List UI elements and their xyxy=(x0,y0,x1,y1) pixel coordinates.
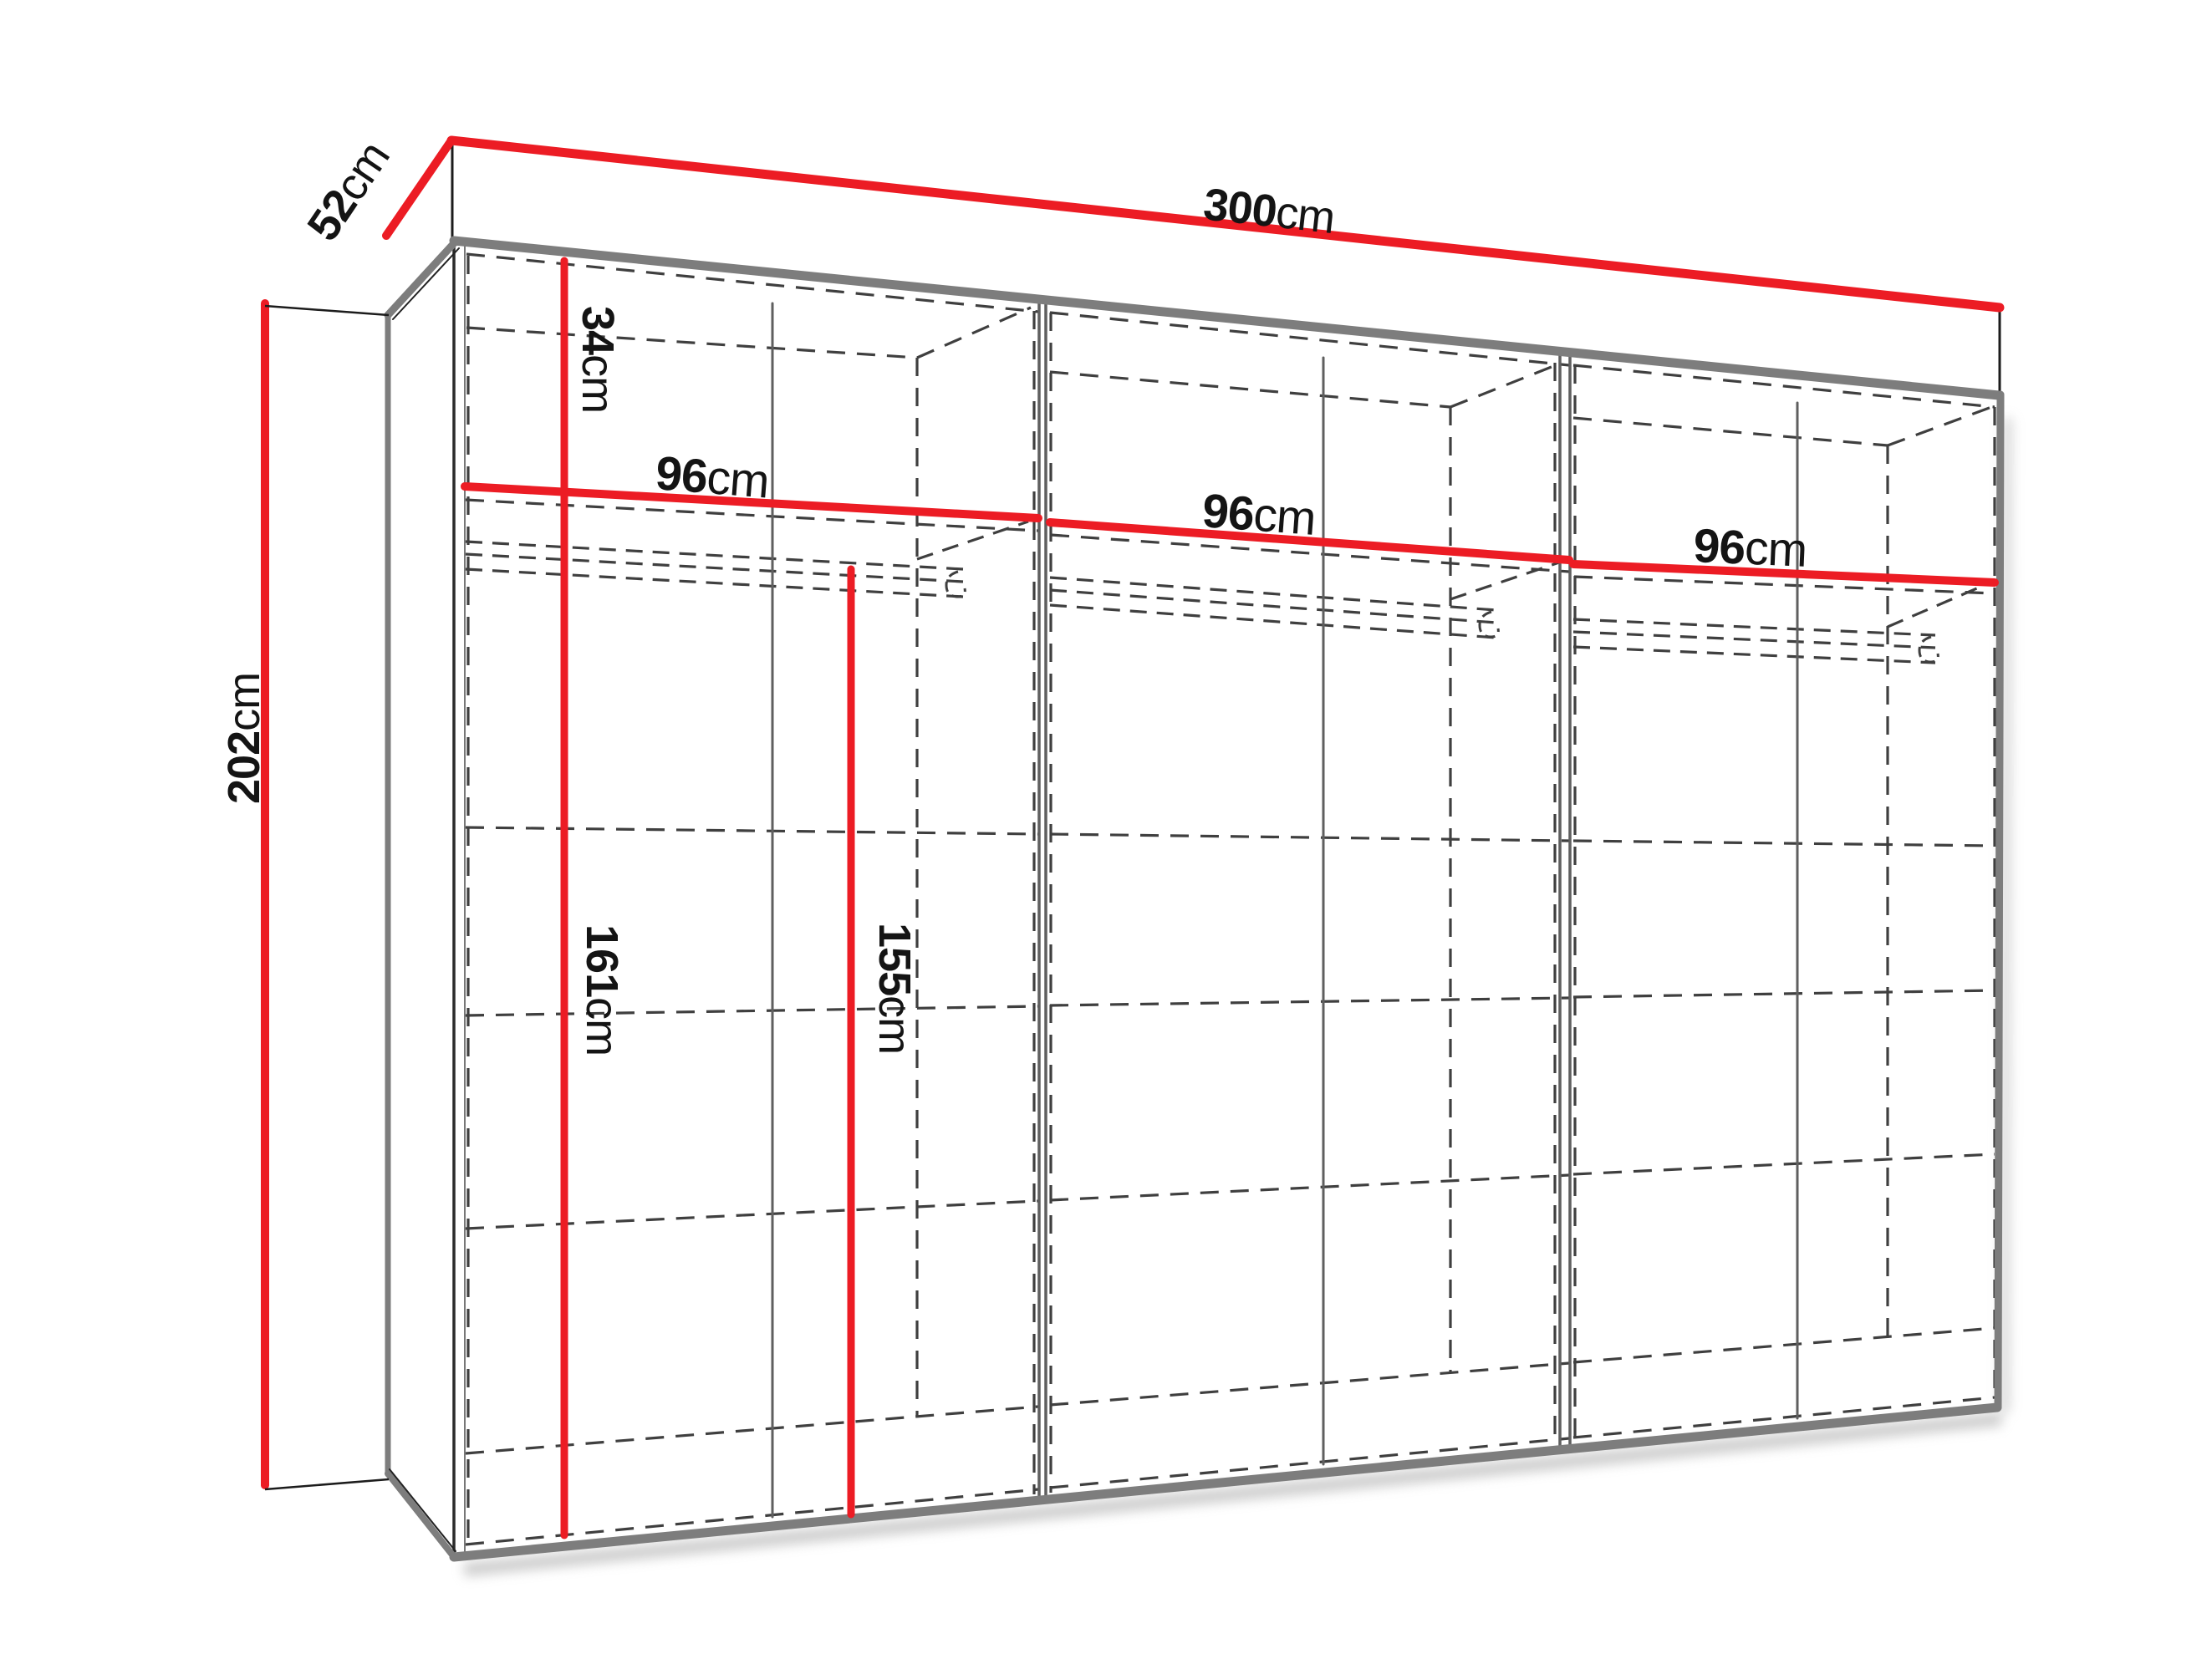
height-ext-top xyxy=(265,306,389,315)
hanging-rod-section3 xyxy=(1573,585,1985,663)
left-bottom-diagonal-edge xyxy=(388,1473,455,1558)
dim-line-depth-52 xyxy=(386,140,451,236)
shelfback-diag-s1 xyxy=(917,308,1031,358)
s2-level2-dashed xyxy=(1050,998,1569,1005)
interior-dashed-lines xyxy=(466,254,1995,1546)
diagram-canvas: 300cm 52cm 202cm 34cm 96cm 96cm 96cm 161… xyxy=(0,0,2212,1659)
dimension-label-hanging-height: 155cm xyxy=(869,923,920,1054)
s1-level2-dashed xyxy=(466,1006,1038,1015)
hanger-hook-icon xyxy=(1919,637,1938,662)
hanging-rod-section1 xyxy=(466,522,1028,597)
shelfback-dashed-s1 xyxy=(466,328,917,358)
s1-level4-dashed xyxy=(466,1407,1038,1453)
dimension-label-section2-width: 96cm xyxy=(1200,484,1318,546)
dimension-lines xyxy=(265,140,2000,1535)
wardrobe-shadow xyxy=(464,418,2007,1570)
left-top-diagonal-inner xyxy=(393,248,459,319)
s3-level1-dashed xyxy=(1573,841,1995,846)
dimension-label-lower-height: 161cm xyxy=(577,924,627,1056)
ceiling-dashed-s1 xyxy=(466,254,1038,312)
dimension-label-section3-width: 96cm xyxy=(1692,519,1807,578)
front-top-edge xyxy=(454,241,1999,395)
wardrobe-dimension-diagram: 300cm 52cm 202cm 34cm 96cm 96cm 96cm 161… xyxy=(0,0,2212,1659)
s2-level3-dashed xyxy=(1050,1175,1569,1200)
right-front-edge xyxy=(1998,394,2000,1407)
dimension-label-top-shelf: 34cm xyxy=(573,306,623,413)
s2-level1-dashed xyxy=(1050,834,1569,841)
s1-level3-dashed xyxy=(466,1201,1038,1229)
dimension-extension-lines xyxy=(265,306,389,1489)
shelfback-dashed-s3 xyxy=(1573,418,1888,445)
s3-level4-dashed xyxy=(1573,1328,1995,1362)
shelfback-diag-s2 xyxy=(1450,364,1560,407)
shelfback-dashed-s2 xyxy=(1050,372,1450,407)
ceiling-dashed-s2 xyxy=(1050,313,1569,365)
shelfback-diag-s3 xyxy=(1888,406,1994,445)
s2-level4-dashed xyxy=(1050,1363,1569,1405)
dimension-label-height: 202cm xyxy=(219,673,269,804)
hanging-rod-section2 xyxy=(1050,562,1559,638)
left-top-diagonal-edge xyxy=(388,242,455,315)
height-ext-bottom xyxy=(265,1479,389,1489)
dimension-label-width: 300cm xyxy=(1201,179,1338,243)
hanger-hook-icon xyxy=(946,572,965,597)
s1-level1-dashed xyxy=(466,827,1038,834)
hanger-hook-icon xyxy=(1480,612,1498,637)
bottom-edge xyxy=(454,1407,1997,1557)
wardrobe-structure xyxy=(388,139,2000,1558)
s3-level2-dashed xyxy=(1573,990,1995,997)
dimension-label-section1-width: 96cm xyxy=(654,446,771,508)
left-bottom-diagonal-inner xyxy=(390,1469,456,1551)
s3-level3-dashed xyxy=(1573,1154,1995,1174)
